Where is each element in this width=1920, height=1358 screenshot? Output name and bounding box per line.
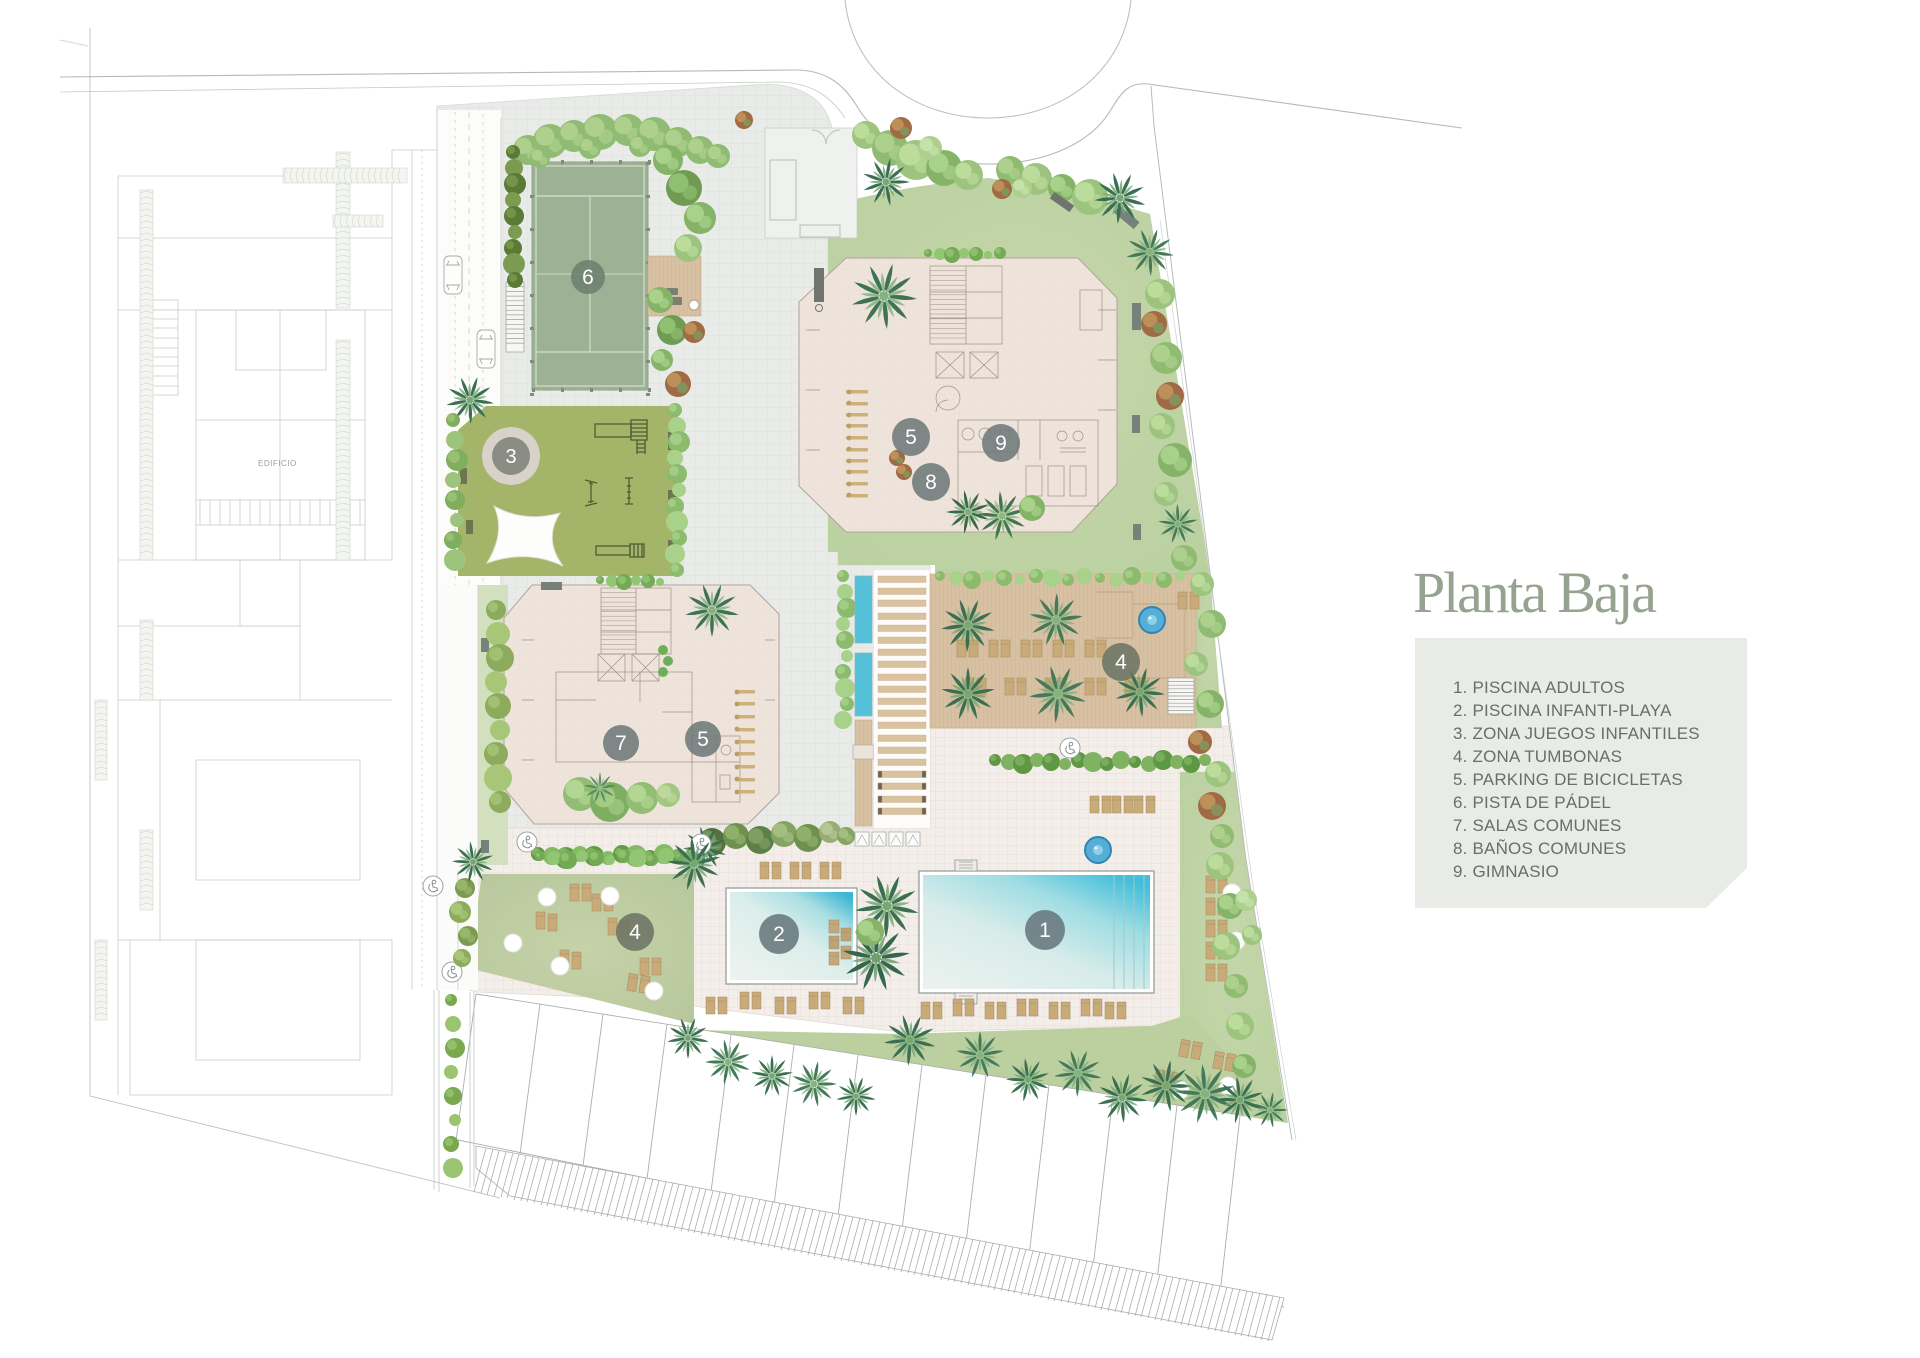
svg-text:4: 4 [1115,651,1127,674]
svg-text:5. PARKING DE BICICLETAS: 5. PARKING DE BICICLETAS [1453,770,1683,789]
svg-text:9. GIMNASIO: 9. GIMNASIO [1453,862,1559,881]
svg-text:3: 3 [505,446,516,468]
svg-text:6. PISTA DE PÁDEL: 6. PISTA DE PÁDEL [1453,793,1611,812]
svg-text:Planta Baja: Planta Baja [1413,560,1657,625]
svg-text:1. PISCINA ADULTOS: 1. PISCINA ADULTOS [1453,678,1625,697]
svg-text:3. ZONA JUEGOS INFANTILES: 3. ZONA JUEGOS INFANTILES [1453,724,1700,743]
svg-text:2: 2 [773,923,785,946]
svg-text:1: 1 [1039,919,1051,942]
svg-text:8: 8 [925,471,937,494]
svg-text:9: 9 [995,432,1007,455]
svg-text:7. SALAS COMUNES: 7. SALAS COMUNES [1453,816,1622,835]
svg-text:5: 5 [697,728,709,751]
svg-text:8. BAÑOS COMUNES: 8. BAÑOS COMUNES [1453,839,1626,858]
svg-text:EDIFICIO: EDIFICIO [258,459,297,468]
svg-text:7: 7 [615,732,627,755]
svg-text:6: 6 [582,266,594,289]
svg-text:2. PISCINA INFANTI-PLAYA: 2. PISCINA INFANTI-PLAYA [1453,701,1672,720]
svg-text:4. ZONA TUMBONAS: 4. ZONA TUMBONAS [1453,747,1622,766]
svg-text:5: 5 [905,426,917,449]
svg-text:4: 4 [629,921,641,944]
